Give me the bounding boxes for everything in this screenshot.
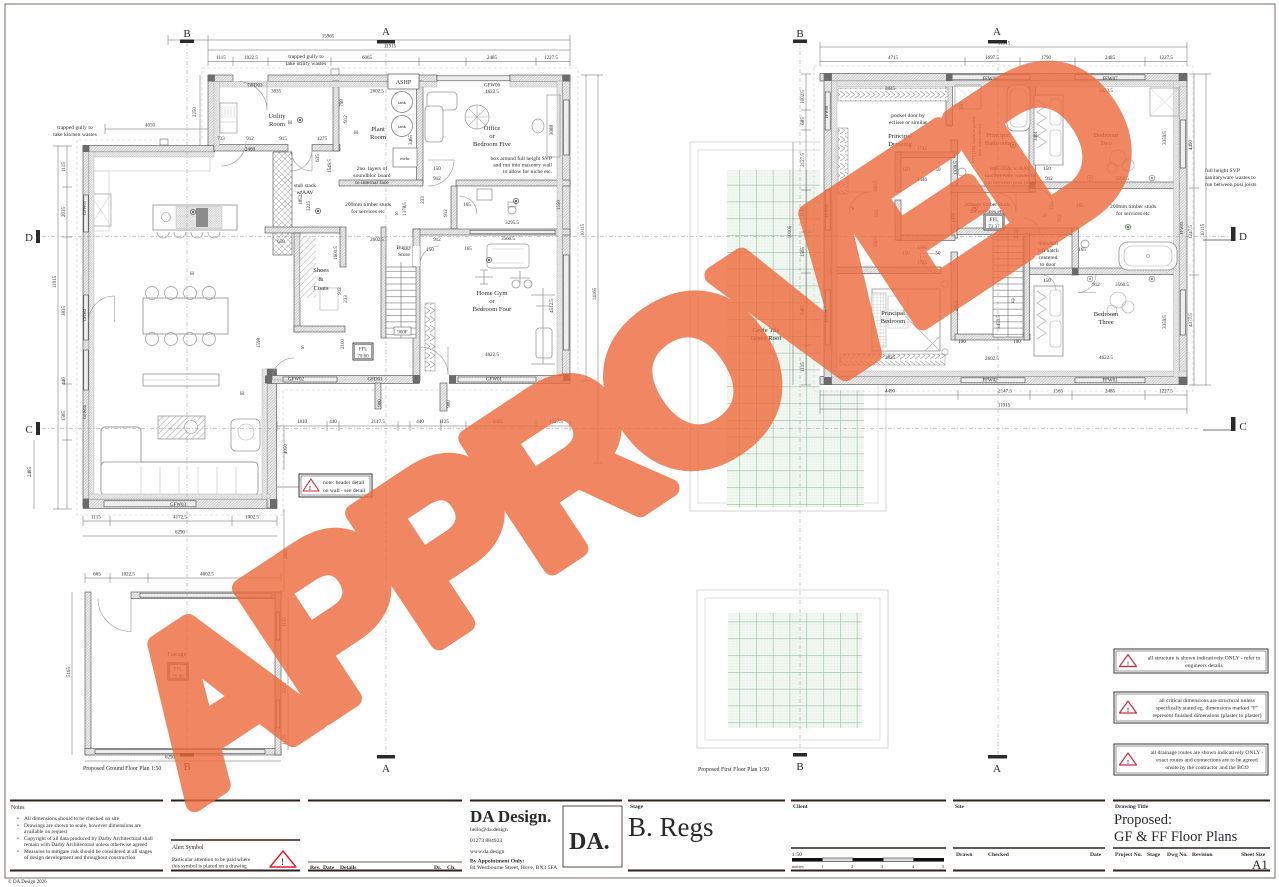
- svg-text:900: 900: [378, 399, 383, 407]
- svg-text:4622.5: 4622.5: [485, 90, 499, 95]
- svg-text:A: A: [382, 26, 390, 38]
- svg-text:Bedroom: Bedroom: [1094, 311, 1119, 318]
- svg-text:run between posi joists: run between posi joists: [1205, 182, 1256, 188]
- svg-text:2602.5: 2602.5: [985, 357, 999, 362]
- svg-text:2: 2: [851, 864, 853, 869]
- svg-text:Site: Site: [955, 804, 965, 810]
- svg-text:© DA Design 2026: © DA Design 2026: [8, 879, 47, 885]
- svg-text:specifically stated eg. dimens: specifically stated eg. dimensions marke…: [1156, 705, 1258, 712]
- svg-text:GFD03: GFD03: [247, 84, 263, 89]
- svg-text:Revision: Revision: [1192, 852, 1213, 858]
- svg-text:4050: 4050: [145, 124, 156, 129]
- svg-text:912: 912: [344, 115, 349, 123]
- svg-text:3088: 3088: [550, 125, 555, 136]
- svg-text:1598: 1598: [257, 338, 262, 349]
- svg-text:3359.5: 3359.5: [1163, 315, 1168, 329]
- svg-text:GFW05: GFW05: [82, 201, 87, 215]
- svg-text:or: or: [489, 133, 495, 140]
- svg-text:01273 884923: 01273 884923: [470, 838, 502, 844]
- svg-text:Copyright of all data produced: Copyright of all data produced by Darby …: [24, 835, 153, 842]
- svg-text:GFW04: GFW04: [82, 404, 87, 418]
- svg-text:Coats: Coats: [313, 285, 328, 292]
- svg-text:3560.5: 3560.5: [501, 237, 515, 242]
- svg-text:2485: 2485: [487, 56, 498, 61]
- svg-text:4622.5: 4622.5: [1099, 89, 1113, 94]
- svg-text:Bedroom Five: Bedroom Five: [473, 141, 511, 148]
- svg-text:B. Regs: B. Regs: [628, 812, 714, 842]
- svg-text:165: 165: [463, 203, 471, 208]
- svg-text:•: •: [17, 816, 19, 822]
- svg-text:3835: 3835: [885, 87, 896, 92]
- svg-text:Room: Room: [370, 134, 387, 141]
- svg-text:3465: 3465: [409, 135, 414, 146]
- svg-text:GFW06: GFW06: [484, 84, 501, 89]
- svg-text:GFD01: GFD01: [367, 378, 383, 383]
- svg-text:of design development and thro: of design development and throughout con…: [24, 854, 136, 861]
- svg-text:Store: Store: [398, 252, 410, 258]
- svg-text:900F: 900F: [397, 331, 408, 336]
- svg-text:FFW05: FFW05: [1179, 222, 1184, 235]
- svg-text:915: 915: [279, 137, 287, 142]
- svg-text:mvhr: mvhr: [400, 156, 410, 161]
- svg-text:1565: 1565: [1053, 390, 1064, 395]
- svg-text:4715: 4715: [888, 56, 899, 61]
- svg-text:Particular attention to be pai: Particular attention to be paid where: [172, 857, 251, 863]
- svg-text:2485: 2485: [1105, 390, 1116, 395]
- svg-text:FFW08: FFW08: [824, 106, 829, 119]
- svg-text:1022.5: 1022.5: [244, 56, 258, 61]
- svg-text:!: !: [1127, 708, 1129, 714]
- svg-text:GFW02: GFW02: [288, 378, 305, 383]
- svg-text:912: 912: [433, 238, 441, 243]
- svg-text:3295.5: 3295.5: [505, 221, 519, 226]
- svg-text:and run into masonry wall: and run into masonry wall: [493, 163, 552, 169]
- svg-text:H: H: [354, 130, 358, 136]
- svg-text:685: 685: [801, 117, 806, 125]
- svg-text:metres: metres: [792, 864, 804, 869]
- svg-text:&: &: [318, 276, 324, 283]
- svg-text:1852.5: 1852.5: [299, 191, 304, 205]
- svg-text:tank: tank: [398, 124, 406, 129]
- svg-text:!: !: [281, 857, 284, 867]
- svg-text:GFW03: GFW03: [170, 503, 187, 508]
- svg-text:Rev.: Rev.: [310, 865, 321, 871]
- svg-text:!: !: [1127, 662, 1129, 668]
- svg-text:1:50: 1:50: [792, 852, 802, 858]
- svg-text:10115: 10115: [581, 223, 586, 236]
- svg-text:4622.5: 4622.5: [485, 353, 499, 358]
- svg-text:tank: tank: [398, 100, 406, 105]
- svg-text:1549.5: 1549.5: [328, 159, 333, 173]
- svg-text:150: 150: [433, 167, 441, 172]
- svg-text:2485: 2485: [1105, 56, 1116, 61]
- svg-text:Notes: Notes: [11, 805, 25, 811]
- svg-text:100: 100: [1013, 340, 1021, 345]
- svg-text:1115: 1115: [62, 162, 67, 172]
- svg-text:trapped gully to: trapped gully to: [288, 54, 324, 60]
- svg-text:650: 650: [277, 240, 285, 245]
- svg-text:1022.5: 1022.5: [121, 573, 135, 578]
- svg-text:Ch.: Ch.: [447, 865, 456, 871]
- svg-text:84 Westbourne Street, Hove, BN: 84 Westbourne Street, Hove, BN3 5FA: [470, 865, 557, 871]
- svg-text:1115: 1115: [216, 56, 226, 61]
- svg-text:DA.: DA.: [569, 829, 610, 855]
- svg-text:A: A: [993, 763, 1001, 775]
- svg-text:1002.5: 1002.5: [801, 90, 806, 104]
- svg-text:440: 440: [62, 377, 67, 385]
- svg-text:4050: 4050: [284, 444, 289, 455]
- svg-text:to allow for niche etc.: to allow for niche etc.: [503, 168, 553, 175]
- svg-text:Stage: Stage: [630, 804, 644, 810]
- svg-text:1227.5: 1227.5: [1159, 390, 1173, 395]
- svg-text:box around full height SVP: box around full height SVP: [490, 155, 552, 162]
- svg-text:912: 912: [1092, 283, 1100, 288]
- svg-text:733: 733: [217, 137, 225, 142]
- svg-text:Stage: Stage: [1147, 852, 1161, 858]
- svg-text:all drainage routes are shown: all drainage routes are shown indicative…: [1151, 750, 1264, 756]
- svg-text:1810: 1810: [297, 420, 308, 425]
- svg-text:Date: Date: [323, 865, 335, 871]
- svg-text:Dr.: Dr.: [434, 865, 442, 871]
- svg-text:3359.5: 3359.5: [1163, 131, 1168, 145]
- svg-text:Proposed:: Proposed:: [1114, 812, 1172, 828]
- svg-text:1227.5: 1227.5: [1159, 56, 1173, 61]
- svg-text:4622.5: 4622.5: [1099, 356, 1113, 361]
- svg-text:1550: 1550: [557, 200, 562, 211]
- svg-text:233: 233: [421, 196, 426, 204]
- svg-text:B: B: [183, 28, 190, 40]
- svg-text:1: 1: [821, 864, 823, 869]
- svg-text:C: C: [1239, 421, 1246, 433]
- svg-text:2035: 2035: [62, 207, 67, 218]
- svg-text:engineers details: engineers details: [1185, 663, 1222, 669]
- svg-text:635: 635: [316, 154, 321, 162]
- svg-text:Checked: Checked: [988, 852, 1010, 858]
- svg-text:3835: 3835: [271, 90, 282, 95]
- svg-text:6065: 6065: [362, 56, 373, 61]
- svg-text:4490: 4490: [1189, 140, 1194, 151]
- svg-text:912: 912: [338, 287, 343, 295]
- svg-text:2485: 2485: [28, 467, 33, 478]
- svg-text:take kitchen wastes: take kitchen wastes: [53, 132, 97, 138]
- svg-text:150: 150: [426, 248, 434, 253]
- svg-text:exact routes and connections a: exact routes and connections are to be a…: [1156, 758, 1258, 764]
- svg-text:all critical dimensions are st: all critical dimensions are structural u…: [1159, 698, 1255, 704]
- svg-text:Three: Three: [1098, 319, 1113, 326]
- svg-text:2147.5: 2147.5: [371, 420, 385, 425]
- svg-text:www.da.design: www.da.design: [470, 849, 505, 855]
- svg-text:11915: 11915: [998, 404, 1011, 409]
- svg-text:or: or: [489, 298, 495, 305]
- svg-text:912: 912: [433, 177, 441, 182]
- svg-text:70.60: 70.60: [357, 355, 369, 360]
- svg-text:•: •: [17, 823, 19, 829]
- svg-text:Buggy: Buggy: [397, 245, 412, 251]
- svg-text:B: B: [796, 761, 803, 773]
- svg-text:Date: Date: [1090, 852, 1102, 858]
- svg-text:Dwg No.: Dwg No.: [1167, 852, 1188, 858]
- svg-text:2250: 2250: [193, 107, 198, 118]
- svg-text:take utility wastes: take utility wastes: [286, 61, 326, 67]
- svg-text:1227.5: 1227.5: [544, 56, 558, 61]
- svg-text:sanitaryware wastes to: sanitaryware wastes to: [1205, 175, 1256, 181]
- svg-text:S: S: [301, 345, 304, 351]
- svg-text:for services etc: for services etc: [351, 208, 385, 215]
- svg-text:1115: 1115: [91, 516, 101, 521]
- svg-text:10115: 10115: [1201, 223, 1206, 236]
- svg-text:200mm timber studs: 200mm timber studs: [345, 202, 391, 208]
- svg-text:to internal face: to internal face: [355, 179, 389, 186]
- svg-text:1275: 1275: [317, 137, 328, 142]
- svg-text:B: B: [796, 28, 803, 40]
- svg-text:2602.5: 2602.5: [370, 238, 384, 243]
- svg-text:2602.5: 2602.5: [370, 90, 384, 95]
- svg-text:2460: 2460: [245, 148, 256, 153]
- svg-text:all structure is shown indicat: all structure is shown indicatively ONLY…: [1148, 655, 1261, 662]
- svg-text:233: 233: [344, 295, 349, 303]
- svg-text:2147.5: 2147.5: [998, 390, 1012, 395]
- svg-text:4377.5: 4377.5: [1189, 313, 1194, 327]
- svg-text:1600.5: 1600.5: [334, 246, 339, 260]
- svg-text:Client: Client: [793, 804, 808, 810]
- svg-text:H: H: [190, 271, 194, 277]
- svg-text:All dimensions should to be ch: All dimensions should to be checked on s…: [24, 816, 120, 822]
- svg-text:Alert Symbol: Alert Symbol: [172, 845, 204, 851]
- svg-text:5165: 5165: [67, 667, 72, 678]
- svg-text:165: 165: [464, 247, 472, 252]
- svg-text:11915: 11915: [53, 275, 58, 288]
- svg-text:2no. layers of: 2no. layers of: [357, 165, 388, 172]
- svg-text:By Appointment Only:: By Appointment Only:: [470, 859, 525, 865]
- svg-text:Proposed First Floor Plan 1:50: Proposed First Floor Plan 1:50: [698, 767, 769, 773]
- svg-text:FFL: FFL: [359, 348, 368, 353]
- svg-text:Details: Details: [340, 865, 357, 871]
- svg-text:trapped gully to: trapped gully to: [57, 125, 93, 131]
- svg-text:4172.5: 4172.5: [173, 516, 187, 521]
- svg-text:Proposed Ground Floor Plan 1:5: Proposed Ground Floor Plan 1:50: [83, 766, 161, 772]
- svg-text:DA Design.: DA Design.: [470, 807, 551, 826]
- svg-text:3560.5: 3560.5: [1115, 283, 1129, 288]
- svg-text:stub stack: stub stack: [294, 183, 316, 189]
- svg-text:available on request: available on request: [24, 829, 68, 835]
- svg-text:15965: 15965: [322, 35, 335, 40]
- svg-text:Bedroom Four: Bedroom Four: [473, 306, 512, 313]
- svg-text:onsite by the contractor and t: onsite by the contractor and the BCO: [1165, 765, 1248, 771]
- svg-text:D: D: [1239, 231, 1247, 243]
- svg-text:GFD02: GFD02: [82, 309, 87, 322]
- svg-text:•: •: [17, 836, 19, 842]
- svg-text:remain with Darby Architectura: remain with Darby Architectural unless o…: [24, 842, 147, 848]
- svg-text:Office: Office: [484, 125, 501, 132]
- svg-text:Utility: Utility: [268, 113, 286, 120]
- svg-text:440: 440: [329, 420, 337, 425]
- svg-text:665: 665: [93, 573, 101, 578]
- svg-text:D: D: [25, 232, 33, 244]
- svg-text:1585: 1585: [62, 411, 67, 422]
- svg-text:Drawing Title: Drawing Title: [1115, 804, 1149, 810]
- svg-text:!: !: [1127, 760, 1129, 766]
- svg-text:798: 798: [340, 99, 345, 107]
- svg-text:represent finished dimensions: represent finished dimensions (plaster t…: [1153, 712, 1262, 719]
- svg-text:Project No.: Project No.: [1115, 852, 1143, 858]
- svg-text:C: C: [25, 424, 32, 436]
- svg-text:H: H: [240, 391, 244, 397]
- svg-text:H: H: [288, 120, 292, 126]
- svg-text:full height SVP.: full height SVP.: [1205, 167, 1241, 174]
- svg-text:3835: 3835: [62, 306, 67, 317]
- svg-text:this symbol is placed on a dra: this symbol is placed on a drawing: [172, 864, 247, 870]
- svg-text:•: •: [17, 849, 19, 855]
- svg-text:FFW01: FFW01: [1102, 379, 1118, 384]
- svg-text:soundbloc board: soundbloc board: [353, 173, 390, 179]
- svg-text:Drawn: Drawn: [956, 852, 973, 858]
- svg-text:Home Gym: Home Gym: [477, 290, 509, 297]
- svg-text:6290: 6290: [175, 531, 186, 536]
- svg-text:A1: A1: [1252, 857, 1268, 872]
- svg-text:912: 912: [444, 209, 449, 217]
- svg-text:2100: 2100: [341, 339, 346, 350]
- svg-text:hello@da.design: hello@da.design: [470, 827, 508, 833]
- svg-text:GF & FF Floor Plans: GF & FF Floor Plans: [1114, 829, 1238, 845]
- svg-text:912: 912: [246, 137, 254, 142]
- svg-text:3225: 3225: [307, 201, 312, 212]
- svg-text:FFW07: FFW07: [1102, 77, 1118, 82]
- svg-text:ASHP: ASHP: [396, 80, 412, 86]
- svg-text:S: S: [395, 211, 398, 217]
- svg-text:1378.5: 1378.5: [403, 202, 408, 216]
- svg-text:4512.5: 4512.5: [550, 299, 555, 313]
- svg-text:Shoes: Shoes: [313, 267, 329, 274]
- svg-text:A: A: [382, 763, 390, 775]
- svg-text:FFW02: FFW02: [982, 379, 998, 384]
- svg-text:Room: Room: [269, 121, 286, 128]
- svg-text:Plant: Plant: [371, 126, 385, 133]
